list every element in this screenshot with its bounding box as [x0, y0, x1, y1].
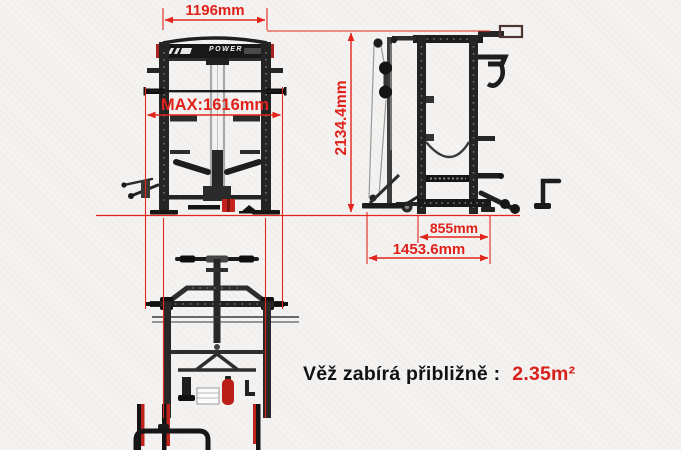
pulley-carriage [379, 86, 392, 99]
lat-bar [176, 162, 208, 172]
l-handle [543, 181, 559, 203]
cable [369, 45, 374, 198]
red-bottle-attachment [222, 379, 234, 405]
spotter-arm [233, 115, 260, 122]
top-view-drawing [136, 256, 299, 450]
diagram-canvas: POWER 1196mm MAX:1616mm 2134.4mm 855mm 1… [0, 0, 681, 450]
lat-bar [227, 162, 259, 172]
spotter-arm [170, 115, 197, 122]
brand-plate-text: POWER [196, 46, 256, 53]
front-right-upright [261, 42, 271, 214]
front-pullup-bar [163, 38, 267, 43]
top-right-rail [263, 303, 271, 418]
footprint-caption: Věž zabírá přibližně :2.35m² [303, 363, 575, 386]
foot-plate [252, 210, 280, 215]
pulley-carriage [379, 62, 392, 75]
top-left-rail [163, 303, 171, 418]
foot-plate [150, 210, 178, 215]
weight-plate [188, 205, 220, 210]
dip-bar [478, 173, 500, 179]
front-view-drawing [121, 38, 286, 215]
footprint-caption-value: 2.35m² [512, 363, 575, 385]
side-view-drawing [362, 26, 559, 214]
dim-total-depth-label: 1453.6mm [363, 242, 495, 257]
u-handle [136, 431, 208, 450]
dim-base-depth-label: 855mm [404, 221, 504, 235]
dim-front-width-label: 1196mm [160, 3, 270, 18]
front-left-upright [159, 42, 169, 214]
dim-height-label: 2134.4mm [334, 77, 350, 159]
pulley [391, 37, 397, 43]
dim-max-width-label: MAX:1616mm [143, 97, 287, 114]
strap [426, 142, 469, 157]
plate-bracket [197, 388, 219, 404]
footprint-caption-label: Věž zabírá přibližně : [303, 363, 500, 385]
